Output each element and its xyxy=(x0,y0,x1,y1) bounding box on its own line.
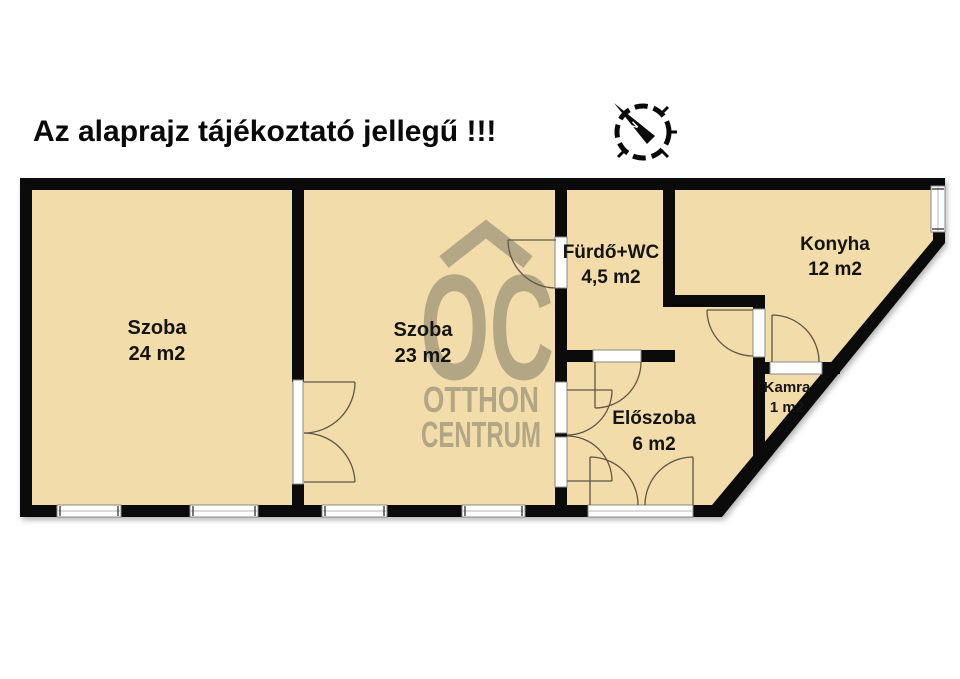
window xyxy=(462,505,525,517)
watermark-logo: OC OTTHON CENTRUM xyxy=(420,229,554,455)
door-opening-szoba23-eloszoba-lower xyxy=(555,437,567,487)
room-label-szoba24-area: 24 m2 xyxy=(129,343,186,365)
room-label-furdo-name: Fürdő+WC xyxy=(563,242,660,263)
wall-konyha-left-horizontal xyxy=(663,295,765,307)
room-label-eloszoba-area: 6 m2 xyxy=(632,434,675,455)
floorplan-drawing: OC OTTHON CENTRUM xyxy=(0,0,960,679)
door-opening-kamra xyxy=(770,362,822,374)
window xyxy=(57,505,121,517)
room-label-szoba23-area: 23 m2 xyxy=(395,345,452,367)
wall-konyha-left-upper xyxy=(753,295,765,309)
wall-szoba24-szoba23-lower xyxy=(292,484,304,505)
room-label-eloszoba-name: Előszoba xyxy=(612,408,696,429)
room-label-szoba23-name: Szoba xyxy=(394,319,454,341)
wall-furdo-right xyxy=(663,190,675,307)
wall-szoba24-szoba23-upper xyxy=(292,190,304,382)
room-label-furdo-area: 4,5 m2 xyxy=(581,267,640,288)
wall-furdo-bottom-right xyxy=(641,350,675,362)
window xyxy=(322,505,387,517)
compass-icon: N xyxy=(614,103,677,158)
wall-szoba23-mid xyxy=(555,288,567,382)
floorplan-page: Az alaprajz tájékoztató jellegű !!! OC O… xyxy=(0,0,960,679)
wall-doorpost xyxy=(555,433,567,437)
room-label-kamra-area: 1 m2 xyxy=(770,399,804,416)
door-opening-szoba24-szoba23 xyxy=(293,380,303,484)
door-opening-szoba23-eloszoba-upper xyxy=(555,382,567,433)
wall-szoba23-lower xyxy=(555,487,567,505)
wall-szoba23-furdo-upper xyxy=(555,190,567,237)
room-label-kamra-name: Kamra xyxy=(764,379,811,396)
wall-kamra-top-left xyxy=(753,362,770,374)
room-label-konyha-name: Konyha xyxy=(800,234,870,255)
disclaimer-text: Az alaprajz tájékoztató jellegű !!! xyxy=(33,115,593,149)
wall-furdo-bottom-left xyxy=(555,350,593,362)
room-label-szoba24-name: Szoba xyxy=(128,317,188,339)
wall-kamra-top-right xyxy=(822,362,840,374)
room-label-konyha-area: 12 m2 xyxy=(808,259,862,280)
watermark-line2: CENTRUM xyxy=(421,414,541,455)
door-opening-konyha xyxy=(753,309,765,357)
window xyxy=(190,505,258,517)
window xyxy=(931,186,945,232)
door-opening-furdo-eloszoba xyxy=(593,350,641,362)
